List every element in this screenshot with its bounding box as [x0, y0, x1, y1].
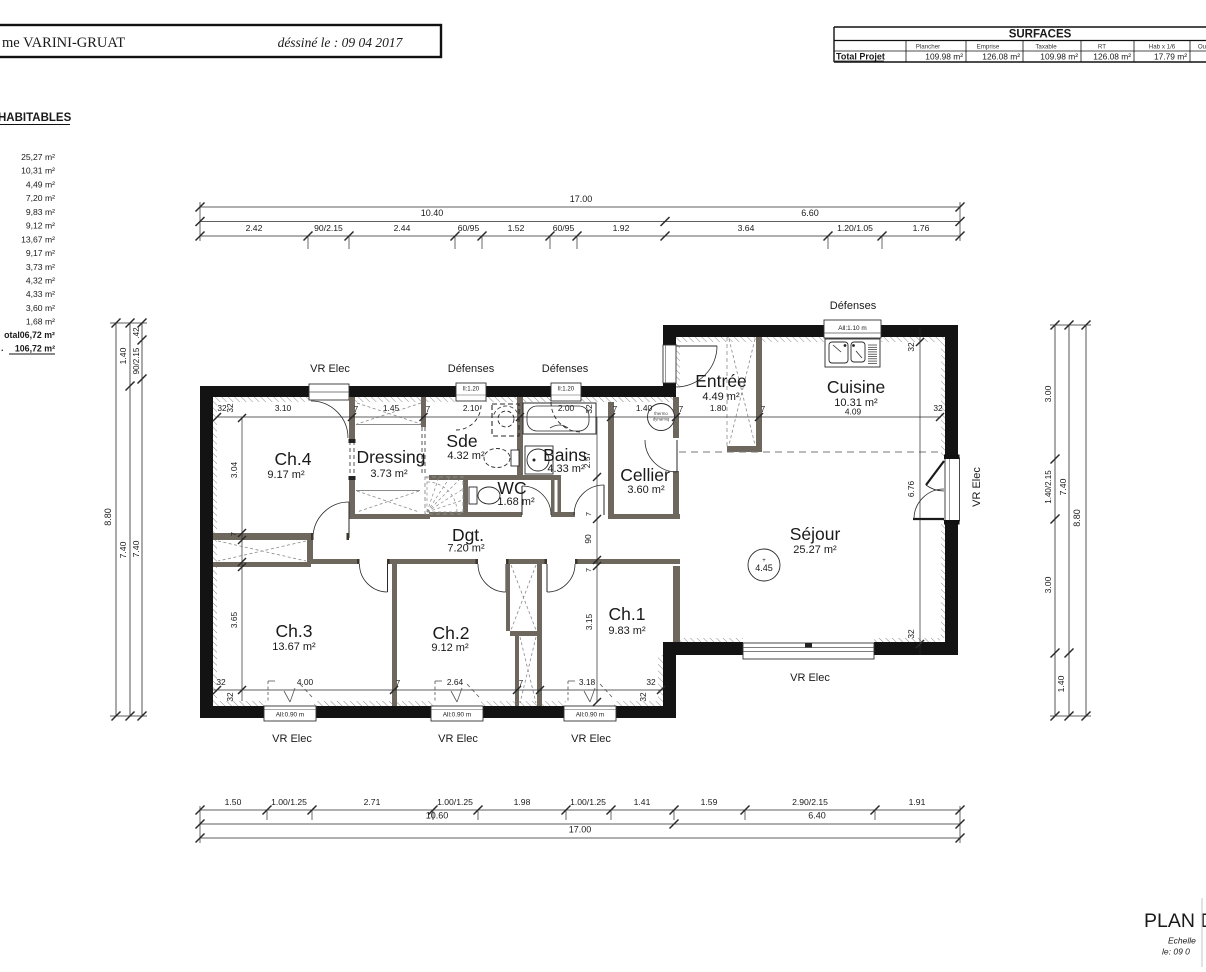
- svg-text:1.52: 1.52: [508, 223, 525, 233]
- svg-text:ll:1.20: ll:1.20: [463, 386, 480, 393]
- svg-text:Ou: Ou: [1198, 44, 1206, 51]
- svg-text:VR Elec: VR Elec: [571, 733, 611, 745]
- svg-text:2.90/2.15: 2.90/2.15: [792, 797, 828, 807]
- svg-text:9.83 m²: 9.83 m²: [608, 625, 646, 637]
- svg-text:.42: .42: [132, 327, 141, 339]
- svg-text:1.40: 1.40: [1056, 675, 1066, 692]
- svg-text:9.17 m²: 9.17 m²: [267, 469, 305, 481]
- svg-text:RT: RT: [1098, 44, 1106, 51]
- svg-text:3.00: 3.00: [1043, 576, 1053, 593]
- svg-text:Echelle: Echelle: [1168, 936, 1196, 946]
- svg-text:109.98 m²: 109.98 m²: [925, 52, 963, 62]
- svg-text:VR Elec: VR Elec: [438, 733, 478, 745]
- svg-text:13,67 m²: 13,67 m²: [21, 234, 55, 244]
- svg-text:Taxable: Taxable: [1035, 44, 1057, 51]
- svg-text:Hab x 1/6: Hab x 1/6: [1149, 44, 1176, 51]
- svg-text:Ch.4: Ch.4: [275, 449, 312, 469]
- svg-text:2.64: 2.64: [447, 677, 464, 687]
- svg-text:90/2.15: 90/2.15: [132, 347, 141, 374]
- svg-text:WC: WC: [497, 478, 526, 498]
- svg-text:17.00: 17.00: [569, 825, 592, 835]
- svg-text:PLAN D: PLAN D: [1144, 910, 1206, 932]
- svg-text:HABITABLES: HABITABLES: [0, 112, 72, 124]
- svg-text:VR Elec: VR Elec: [272, 733, 312, 745]
- svg-text:1.00/1.25: 1.00/1.25: [437, 797, 473, 807]
- svg-text:1.80: 1.80: [710, 403, 727, 413]
- svg-text:32: 32: [225, 403, 235, 413]
- svg-text:thermo: thermo: [654, 411, 668, 416]
- svg-text:1.00/1.25: 1.00/1.25: [271, 797, 307, 807]
- svg-text:9,17 m²: 9,17 m²: [26, 248, 55, 258]
- svg-text:3,73 m²: 3,73 m²: [26, 262, 55, 272]
- svg-text:Défenses: Défenses: [542, 363, 589, 375]
- svg-text:7.40: 7.40: [1058, 478, 1068, 495]
- svg-text:4,32 m²: 4,32 m²: [26, 275, 55, 285]
- svg-text:25,27 m²: 25,27 m²: [21, 152, 55, 162]
- svg-text:126.08 m²: 126.08 m²: [1093, 52, 1131, 62]
- svg-text:1.20/1.05: 1.20/1.05: [837, 223, 873, 233]
- svg-text:SURFACES: SURFACES: [1009, 29, 1072, 41]
- svg-text:3.10: 3.10: [275, 403, 292, 413]
- svg-text:32: 32: [638, 692, 648, 702]
- svg-text:Défenses: Défenses: [830, 300, 877, 312]
- svg-text:4,33 m²: 4,33 m²: [26, 289, 55, 299]
- svg-text:4.00: 4.00: [297, 677, 314, 687]
- svg-text:4.33 m²: 4.33 m²: [547, 463, 585, 475]
- svg-text:+: +: [762, 558, 766, 564]
- svg-text:4.49 m²: 4.49 m²: [702, 391, 740, 403]
- svg-text:Entrée: Entrée: [695, 371, 747, 391]
- svg-text:6.76: 6.76: [906, 481, 916, 498]
- svg-text:1.41: 1.41: [634, 797, 651, 807]
- svg-text:All:0.90 m: All:0.90 m: [576, 712, 604, 719]
- svg-text:1.76: 1.76: [913, 223, 930, 233]
- svg-text:8.80: 8.80: [1072, 509, 1082, 527]
- svg-text:3.04: 3.04: [229, 462, 239, 479]
- svg-text:All:1.10 m: All:1.10 m: [838, 325, 866, 332]
- svg-text:6.60: 6.60: [801, 208, 819, 218]
- svg-text:.: .: [1, 343, 4, 353]
- svg-text:1.40/2.15: 1.40/2.15: [1044, 470, 1053, 504]
- svg-text:25.27 m²: 25.27 m²: [793, 544, 837, 556]
- svg-text:60/95: 60/95: [458, 223, 480, 233]
- svg-text:1,68 m²: 1,68 m²: [26, 317, 55, 327]
- svg-text:32: 32: [646, 677, 656, 687]
- svg-text:1.40: 1.40: [118, 347, 128, 364]
- svg-text:1.00/1.25: 1.00/1.25: [570, 797, 606, 807]
- svg-text:2.10: 2.10: [463, 403, 480, 413]
- svg-text:7: 7: [679, 405, 684, 414]
- svg-text:Séjour: Séjour: [790, 524, 841, 544]
- svg-text:32: 32: [933, 403, 943, 413]
- svg-text:7: 7: [519, 679, 524, 688]
- svg-text:109.98 m²: 109.98 m²: [1040, 52, 1078, 62]
- svg-text:6.40: 6.40: [808, 811, 826, 821]
- svg-text:Bains: Bains: [543, 445, 587, 465]
- svg-text:32: 32: [216, 677, 226, 687]
- svg-text:10,31 m²: 10,31 m²: [21, 166, 55, 176]
- svg-text:3.18: 3.18: [579, 677, 596, 687]
- svg-text:4.32 m²: 4.32 m²: [447, 450, 485, 462]
- svg-text:1.45: 1.45: [383, 403, 400, 413]
- svg-text:90: 90: [583, 534, 593, 544]
- svg-text:4.45: 4.45: [755, 563, 773, 573]
- svg-text:7: 7: [426, 405, 431, 414]
- svg-text:32: 32: [584, 404, 594, 414]
- svg-text:7.20 m²: 7.20 m²: [447, 543, 485, 555]
- svg-text:VR Elec: VR Elec: [310, 363, 350, 375]
- svg-text:All:0.90 m: All:0.90 m: [276, 712, 304, 719]
- svg-text:3.73 m²: 3.73 m²: [370, 468, 408, 480]
- svg-text:Emprise: Emprise: [977, 44, 1000, 51]
- svg-text:1.92: 1.92: [613, 223, 630, 233]
- svg-text:VR Elec: VR Elec: [971, 467, 983, 507]
- svg-text:Dressing: Dressing: [356, 447, 425, 467]
- svg-text:7: 7: [613, 405, 618, 414]
- svg-text:1.91: 1.91: [909, 797, 926, 807]
- svg-text:3,60 m²: 3,60 m²: [26, 303, 55, 313]
- svg-text:Plancher: Plancher: [916, 44, 940, 51]
- svg-text:2.44: 2.44: [394, 223, 411, 233]
- svg-text:7: 7: [396, 679, 401, 688]
- svg-text:7: 7: [584, 568, 593, 572]
- svg-text:7: 7: [584, 512, 593, 516]
- svg-text:7.40: 7.40: [118, 541, 128, 558]
- svg-text:me VARINI-GRUAT: me VARINI-GRUAT: [2, 35, 125, 51]
- svg-text:Ch.1: Ch.1: [609, 604, 646, 624]
- svg-text:7: 7: [229, 532, 238, 536]
- svg-text:otal06,72 m²: otal06,72 m²: [4, 330, 55, 340]
- svg-text:2.71: 2.71: [364, 797, 381, 807]
- svg-text:13.67 m²: 13.67 m²: [272, 641, 316, 653]
- svg-text:3.65: 3.65: [229, 612, 239, 629]
- svg-text:ll:1.20: ll:1.20: [558, 386, 575, 393]
- svg-text:3.15: 3.15: [584, 614, 594, 631]
- svg-text:1.98: 1.98: [514, 797, 531, 807]
- svg-text:60/95: 60/95: [553, 223, 575, 233]
- svg-text:7: 7: [354, 405, 359, 414]
- svg-text:4,49 m²: 4,49 m²: [26, 179, 55, 189]
- svg-text:106,72 m²: 106,72 m²: [15, 344, 55, 354]
- svg-text:1.59: 1.59: [701, 797, 718, 807]
- svg-text:3.00: 3.00: [1043, 385, 1053, 402]
- svg-text:9,83 m²: 9,83 m²: [26, 207, 55, 217]
- svg-text:3.60 m²: 3.60 m²: [627, 484, 665, 496]
- svg-text:Sde: Sde: [446, 431, 477, 451]
- svg-text:7,20 m²: 7,20 m²: [26, 193, 55, 203]
- svg-text:Ch.3: Ch.3: [276, 621, 313, 641]
- svg-text:Cellier: Cellier: [620, 465, 670, 485]
- svg-text:8.80: 8.80: [103, 508, 113, 526]
- svg-text:2.42: 2.42: [246, 223, 263, 233]
- svg-text:10.60: 10.60: [426, 811, 449, 821]
- svg-text:32: 32: [906, 342, 916, 352]
- svg-text:10.40: 10.40: [421, 208, 444, 218]
- svg-text:Total Projet: Total Projet: [836, 52, 885, 62]
- svg-text:126.08 m²: 126.08 m²: [982, 52, 1020, 62]
- svg-text:17.79 m²: 17.79 m²: [1154, 52, 1187, 62]
- svg-text:1.68 m²: 1.68 m²: [497, 496, 535, 508]
- svg-text:All:0.90 m: All:0.90 m: [443, 712, 471, 719]
- svg-text:32: 32: [906, 629, 916, 639]
- svg-text:9.12 m²: 9.12 m²: [431, 642, 469, 654]
- svg-text:9,12 m²: 9,12 m²: [26, 221, 55, 231]
- svg-text:déssiné le : 09 04 2017: déssiné le : 09 04 2017: [278, 35, 404, 50]
- svg-text:1.50: 1.50: [225, 797, 242, 807]
- svg-text:Ch.2: Ch.2: [433, 623, 470, 643]
- svg-text:90/2.15: 90/2.15: [314, 223, 343, 233]
- svg-text:Cuisine: Cuisine: [827, 377, 885, 397]
- svg-text:17.00: 17.00: [570, 194, 593, 204]
- svg-text:7.40: 7.40: [131, 540, 141, 557]
- svg-text:3.64: 3.64: [738, 223, 755, 233]
- svg-text:VR Elec: VR Elec: [790, 672, 830, 684]
- svg-text:32: 32: [225, 692, 235, 702]
- svg-text:10.31 m²: 10.31 m²: [834, 397, 878, 409]
- svg-text:7: 7: [761, 405, 766, 414]
- svg-text:Défenses: Défenses: [448, 363, 495, 375]
- svg-text:2.00: 2.00: [558, 403, 575, 413]
- svg-text:1.40: 1.40: [636, 403, 653, 413]
- svg-text:le: 09 0: le: 09 0: [1162, 947, 1190, 957]
